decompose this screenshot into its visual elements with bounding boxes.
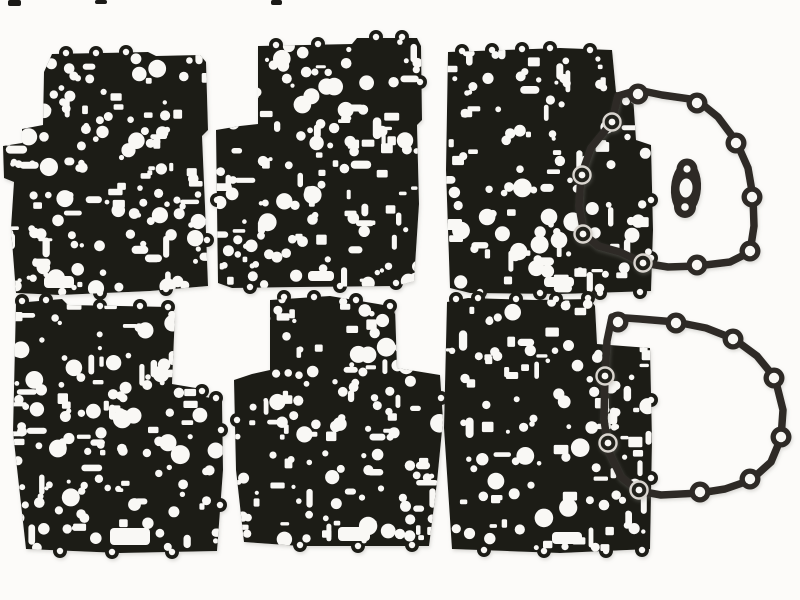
gasket-kit-photo xyxy=(0,0,800,600)
separator-plate-bottom-right xyxy=(444,291,658,558)
separator-plate-bottom-left xyxy=(10,293,229,559)
separator-plate-top-middle xyxy=(210,30,427,294)
separator-plate-top-right xyxy=(444,41,658,300)
cropped-edge-fragments xyxy=(8,0,282,6)
separator-plate-bottom-middle xyxy=(230,290,449,553)
product-photo xyxy=(0,0,800,600)
oval-port-gasket xyxy=(669,159,703,219)
separator-plate-top-left xyxy=(3,45,214,300)
